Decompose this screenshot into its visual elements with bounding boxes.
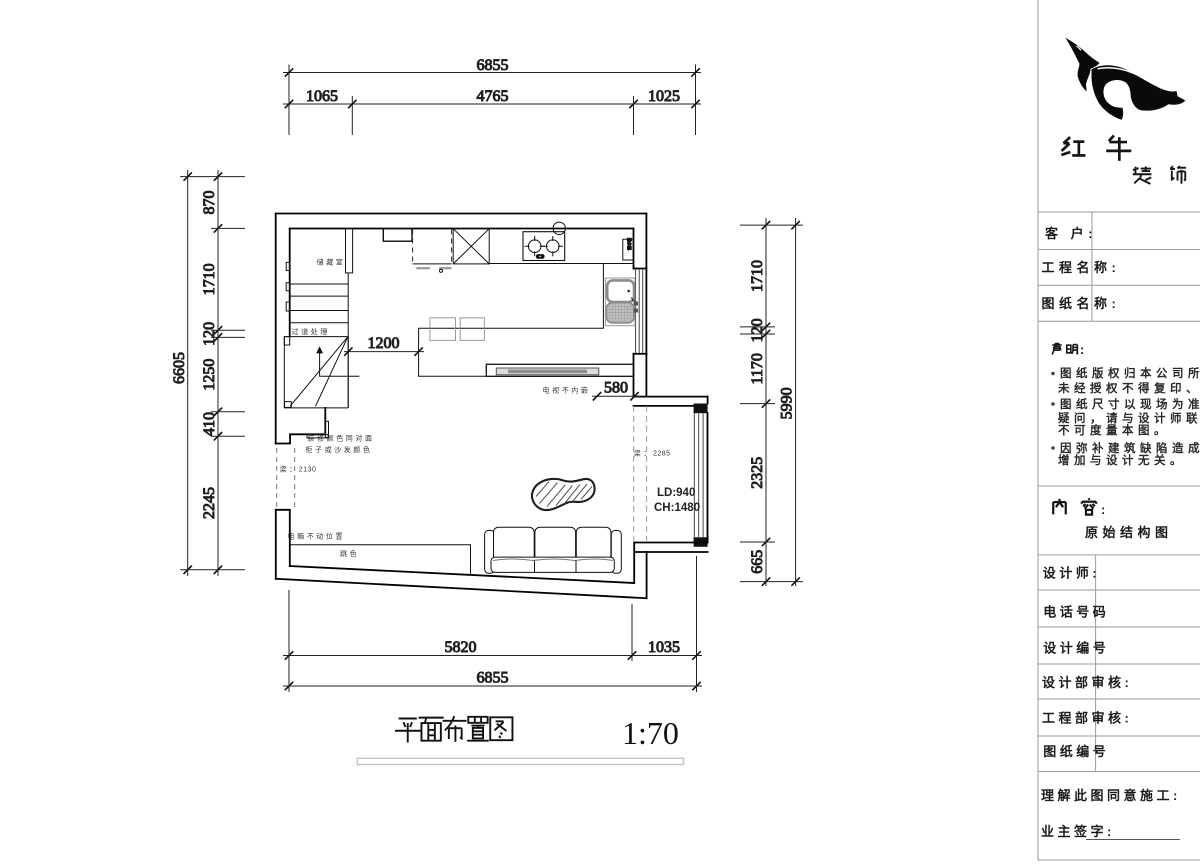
svg-text:增加与设计无关。: 增加与设计无关。 [1058,453,1186,467]
svg-text:业主签字:: 业主签字: [1041,824,1115,839]
svg-text:工程名称:: 工程名称: [1042,260,1121,275]
svg-text:6855: 6855 [477,670,509,687]
svg-text:1:70: 1:70 [622,715,679,751]
svg-text::: : [1080,342,1089,357]
svg-text:过道处理: 过道处理 [292,327,330,336]
svg-text:不可度量本图。: 不可度量本图。 [1058,423,1170,437]
svg-text:疑问，请与设计师联系.: 疑问，请与设计师联系. [1058,411,1200,425]
svg-text:1710: 1710 [749,260,766,292]
svg-text:设计编号: 设计编号 [1043,641,1109,656]
svg-text:5820: 5820 [445,639,477,656]
svg-text:设计师:: 设计师: [1043,566,1100,581]
svg-text:1025: 1025 [648,88,680,105]
svg-text:原始结构图: 原始结构图 [1085,525,1173,540]
svg-text:柜子或沙发颜色: 柜子或沙发颜色 [305,445,372,454]
svg-text:LD:940: LD:940 [657,487,695,499]
svg-text:665: 665 [749,550,766,574]
svg-text:1035: 1035 [648,639,680,656]
svg-text:梁：2130: 梁：2130 [280,465,317,474]
svg-text:1200: 1200 [368,335,400,352]
svg-text:1710: 1710 [201,263,218,295]
svg-text:热水器: 热水器 [627,238,633,250]
svg-text:因弥补建筑缺陷造成的费用: 因弥补建筑缺陷造成的费用 [1060,441,1200,455]
svg-text:电箱不动位置: 电箱不动位置 [288,532,346,541]
svg-text::: : [1101,502,1110,517]
svg-text:5990: 5990 [779,387,796,419]
svg-text:410: 410 [201,412,218,436]
svg-text:跳色: 跳色 [340,549,359,558]
svg-text:CH:1480: CH:1480 [654,502,700,514]
svg-text:1250: 1250 [201,359,218,391]
svg-text:120: 120 [201,322,218,346]
svg-text:870: 870 [201,191,218,215]
svg-text:1065: 1065 [306,88,338,105]
svg-text:储藏室: 储藏室 [317,258,346,267]
svg-text:装修颜色同对面: 装修颜色同对面 [307,433,374,442]
svg-text:设计部审核:: 设计部审核: [1042,675,1132,690]
svg-text:6605: 6605 [171,352,188,384]
svg-text:理解此图同意施工:: 理解此图同意施工: [1041,788,1181,803]
svg-text:图纸尺寸以现场为准，如有: 图纸尺寸以现场为准，如有 [1060,397,1200,411]
svg-text:4765: 4765 [477,88,509,105]
svg-text:图纸版权归本公司所有，: 图纸版权归本公司所有， [1060,366,1200,380]
svg-text:6855: 6855 [477,57,509,74]
svg-text:电话号码: 电话号码 [1043,605,1109,620]
svg-text:工程部审核:: 工程部审核: [1042,711,1132,726]
svg-text:图纸名称:: 图纸名称: [1042,296,1121,311]
svg-text:2325: 2325 [749,457,766,489]
svg-text:客 户:: 客 户: [1045,226,1097,241]
svg-text:未经授权不得复印、转抄。: 未经授权不得复印、转抄。 [1057,381,1200,395]
svg-text:图纸编号: 图纸编号 [1043,744,1109,759]
svg-text:120: 120 [749,318,766,342]
svg-text:1170: 1170 [749,353,766,384]
svg-text:2245: 2245 [201,487,218,519]
svg-text:电视不内嵌: 电视不内嵌 [543,386,591,395]
svg-text:580: 580 [604,380,628,397]
svg-text:梁：2285: 梁：2285 [634,449,671,458]
